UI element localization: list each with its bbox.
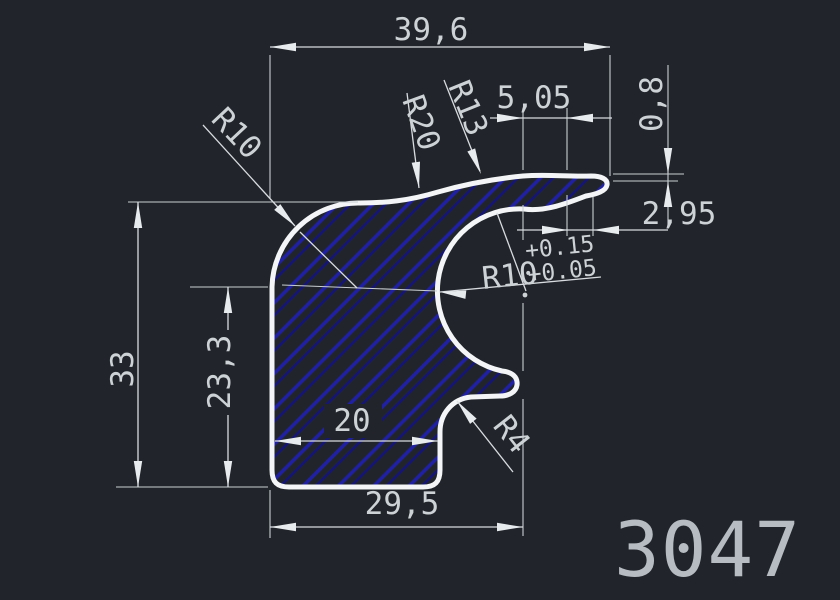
dim-base-width: 29,5 xyxy=(365,486,440,522)
dim-lip-thickness: 0,8 xyxy=(634,76,670,132)
dim-height-side: 23,3 xyxy=(202,335,238,410)
dim-width-total: 39,6 xyxy=(394,12,469,48)
dim-height-total: 33 xyxy=(105,350,141,387)
dim-tip-length: 2,95 xyxy=(642,196,717,232)
drawing-number: 3047 xyxy=(614,505,801,594)
cad-drawing-viewport: 39,6 5,05 0,8 2,95 33 23,3 20 29,5 R10 R… xyxy=(0,0,840,600)
dim-base-inner: 20 xyxy=(333,403,370,439)
arc-center-mark xyxy=(523,293,528,298)
dim-lip-segment: 5,05 xyxy=(497,80,572,116)
profile-drawing-3047: 39,6 5,05 0,8 2,95 33 23,3 20 29,5 R10 R… xyxy=(0,0,840,600)
